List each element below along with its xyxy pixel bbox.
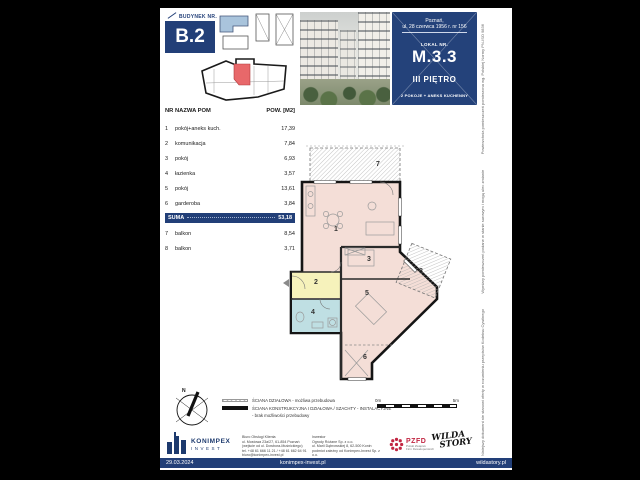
col-nr: NR <box>165 108 175 114</box>
table-row: 8 balkon 3,71 <box>165 241 295 256</box>
row-nr: 4 <box>165 171 175 177</box>
room-label-5: 5 <box>365 290 369 297</box>
unit-info-panel: Poznań, ul. 28 czerwca 1956 r. nr 156 LO… <box>392 12 477 105</box>
offer-card: BUDYNEK NR. B.2 <box>160 8 512 470</box>
row-nr: 6 <box>165 201 175 207</box>
row-name: pokój <box>175 156 188 162</box>
row-name: balkon <box>175 231 191 237</box>
row-nr: 1 <box>165 126 175 132</box>
balcony-7 <box>306 146 404 182</box>
project-url[interactable]: wildastory.pl <box>476 460 506 466</box>
scale-bar: 0m 5m <box>375 398 459 408</box>
pzfd-logo: PZFD Polski Związek Firm Deweloperskich <box>389 437 434 452</box>
row-nr: 3 <box>165 156 175 162</box>
room-label-7: 7 <box>376 161 380 168</box>
investor-block: Inwestor Ogrody Różane Sp. z o.o. ul. Ma… <box>312 435 382 458</box>
north-compass: N <box>170 384 214 430</box>
neighbor-building <box>223 36 248 49</box>
row-name: komunikacja <box>175 141 206 147</box>
table-row: 2 komunikacja 7,84 <box>165 136 295 151</box>
floor-plan: 7 1 3 8 2 5 4 6 <box>278 136 478 398</box>
col-area: POW. [M2] <box>266 108 295 114</box>
wilda-line: STORY <box>439 438 472 450</box>
developer-url[interactable]: konimpex-invest.pl <box>280 460 326 466</box>
scale-max: 5m <box>453 398 459 403</box>
invest-wordmark: INVEST <box>191 446 230 451</box>
room-label-1: 1 <box>334 226 338 233</box>
room-label-8: 8 <box>419 268 423 275</box>
row-name: pokój <box>175 186 188 192</box>
legend-text: ŚCIANA DZIAŁOWA - możliwa przebudowa <box>252 398 335 403</box>
row-nr: 7 <box>165 231 175 237</box>
photo-courtyard-greenery <box>300 79 390 105</box>
row-name: balkon <box>175 246 191 252</box>
room-table-header: NR NAZWA POM POW. [M2] <box>165 108 295 114</box>
structural-wall-swatch <box>222 406 248 410</box>
north-label: N <box>182 388 186 394</box>
legend-text-continued: - brak możliwości przebudowy <box>252 413 391 418</box>
row-name: pokój+aneks kuch. <box>175 126 221 132</box>
row-nr: 2 <box>165 141 175 147</box>
pzfd-emblem-icon <box>389 437 404 452</box>
suma-label: SUMA <box>168 215 184 221</box>
table-row: 4 łazienka 3,57 <box>165 166 295 181</box>
room-label-4: 4 <box>311 309 315 316</box>
room-label-6: 6 <box>363 354 367 361</box>
panel-decor-lines <box>392 12 477 105</box>
room-label-3: 3 <box>367 256 371 263</box>
row-name: łazienka <box>175 171 195 177</box>
entrance-arrow <box>283 279 289 287</box>
suma-leader <box>187 217 275 218</box>
row-nr: 8 <box>165 246 175 252</box>
scale-min: 0m <box>375 398 381 403</box>
konimpex-invest-logo: KONIMPEX INVEST <box>166 432 230 456</box>
side-disclaimer: Niniejszy dokument nie stanowi oferty w … <box>480 24 485 456</box>
highlighted-building-shape <box>220 16 248 32</box>
wall-legend: ŚCIANA DZIAŁOWA - możliwa przebudowa ŚCI… <box>222 398 391 418</box>
investor-line: podmiot zależny od Konimpex-Invest Sp. z… <box>312 449 382 458</box>
room-table: NR NAZWA POM POW. [M2] 1 pokój+aneks kuc… <box>165 108 295 256</box>
legend-item-partition: ŚCIANA DZIAŁOWA - możliwa przebudowa <box>222 398 391 403</box>
disclaimer-legal: Niniejszy dokument nie stanowi oferty w … <box>480 309 485 456</box>
scale-bar-segments <box>377 404 457 408</box>
legend-text: ŚCIANA KONSTRUKCYJNA I DZIAŁOWA / SZACHT… <box>252 406 391 411</box>
table-row: 6 garderoba 3,84 <box>165 196 295 211</box>
building-photo <box>300 12 390 105</box>
room-label-2: 2 <box>314 279 318 286</box>
konimpex-wordmark: KONIMPEX <box>191 438 230 445</box>
table-row: 3 pokój 6,93 <box>165 151 295 166</box>
col-name: NAZWA POM <box>175 108 211 114</box>
site-plan-thumbnail <box>218 12 296 54</box>
suma-row: SUMA 53,18 <box>165 213 295 223</box>
table-row: 7 balkon 8,54 <box>165 226 295 241</box>
disclaimer-norm: Powierzchnia pomieszczeń pomierzona wg. … <box>480 24 485 154</box>
row-area: 17,39 <box>281 126 295 132</box>
konimpex-icon <box>166 432 188 456</box>
legend-item-structural: ŚCIANA KONSTRUKCYJNA I DZIAŁOWA / SZACHT… <box>222 406 391 411</box>
row-name: garderoba <box>175 201 200 207</box>
office-contact-block: Biuro Obsługi Klienta ul. Mostowa 23a/27… <box>242 435 308 458</box>
floor-key-plan <box>194 55 292 107</box>
wilda-story-logo: WILDA STORY <box>431 430 472 451</box>
partition-wall-swatch <box>222 399 248 403</box>
pzfd-subtitle: Firm Deweloperskich <box>406 448 434 451</box>
disclaimer-dims: Wymiary pomieszczeń podane w stanie suro… <box>480 170 485 294</box>
table-row: 1 pokój+aneks kuch. 17,39 <box>165 121 295 136</box>
building-number-label: BUDYNEK NR. <box>167 14 217 20</box>
page-background: BUDYNEK NR. B.2 <box>0 0 640 480</box>
highlighted-unit-shape <box>234 64 250 85</box>
date-stamp: 29.03.2024 <box>166 460 194 466</box>
bottom-bar: 29.03.2024 konimpex-invest.pl wildastory… <box>160 458 512 468</box>
row-nr: 5 <box>165 186 175 192</box>
building-number-badge: B.2 <box>165 21 215 53</box>
table-row: 5 pokój 13,61 <box>165 181 295 196</box>
